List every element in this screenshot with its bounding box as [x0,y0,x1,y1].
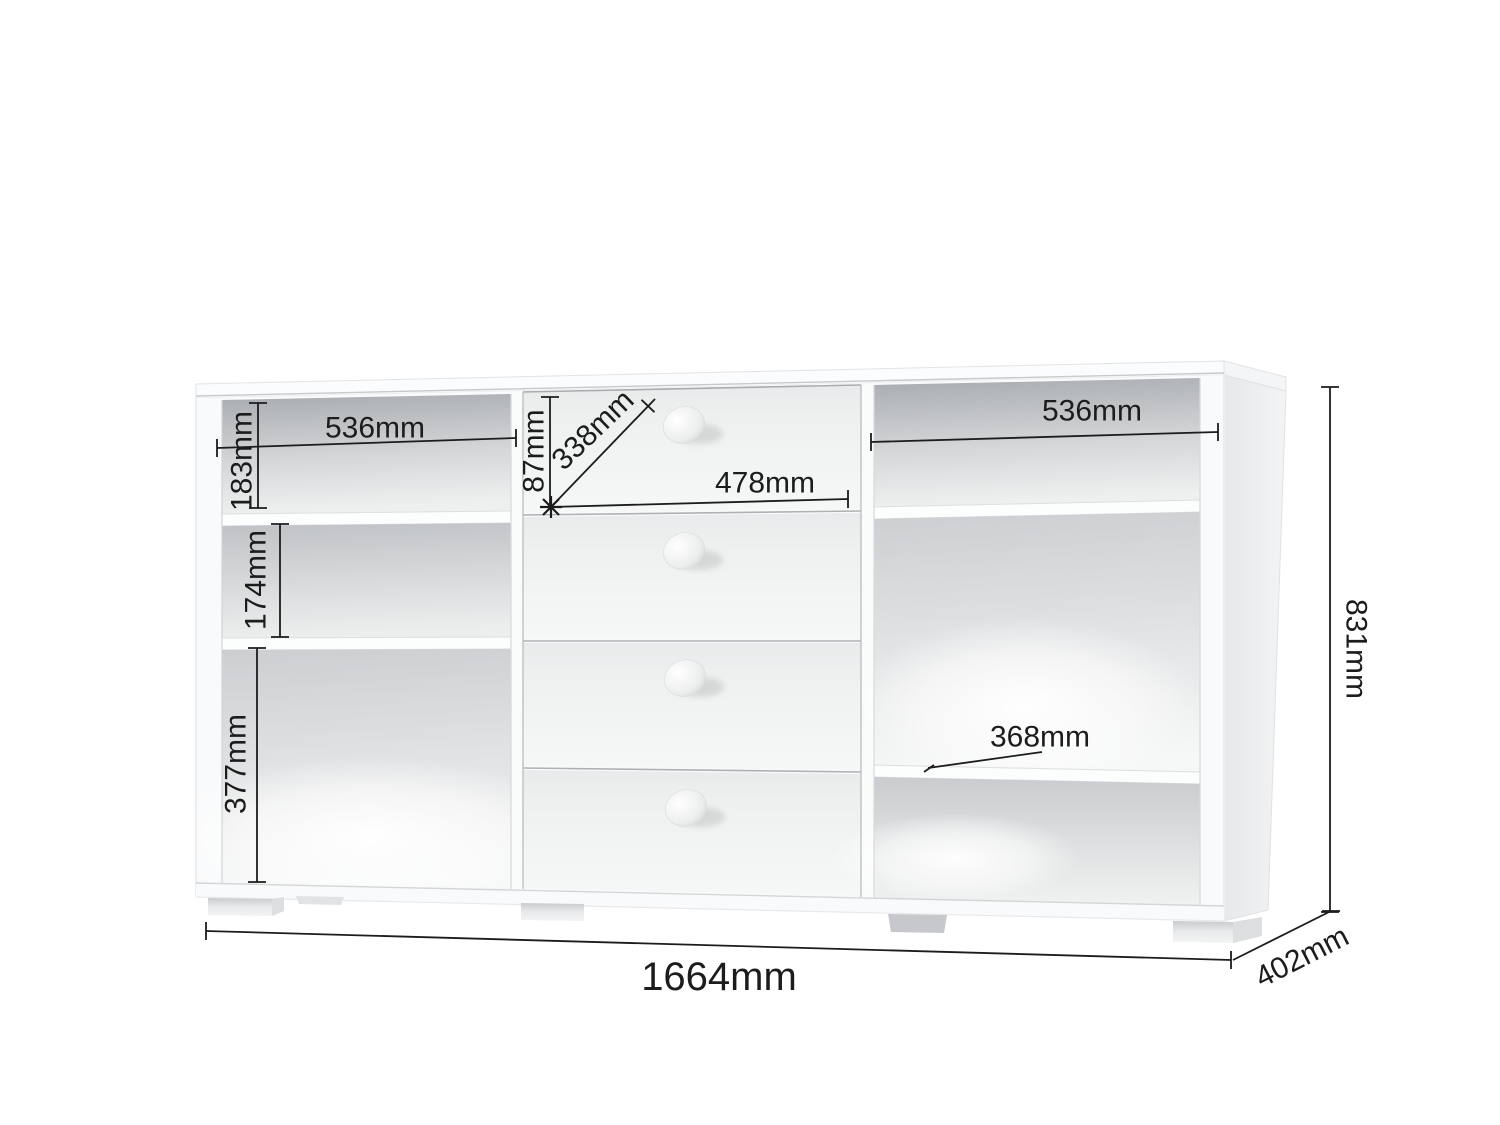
dim-origin-star [540,496,562,518]
drawer-4 [523,770,861,896]
dim-drawer-width-label: 478mm [715,467,815,500]
dim-overall-height-label: 831mm [1340,599,1373,699]
dim-left-middle-compartment-height-label: 174mm [240,530,273,630]
foot-back-mid [888,914,947,933]
right-side-panel [1224,375,1286,921]
foot-front-left-side [272,897,284,916]
foot-back-left [296,896,344,905]
dim-overall-height [1321,387,1339,912]
foot-mid-left [521,903,584,921]
dim-left-shelf-width-label: 536mm [325,412,425,445]
dim-right-shelf-width-label: 536mm [1042,395,1142,428]
sideboard-dimension-diagram: 536mm 183mm 174mm 377mm 87mm 338mm 478mm… [0,0,1500,1125]
dim-overall-width-label: 1664mm [641,955,797,999]
diagram-canvas: 536mm 183mm 174mm 377mm 87mm 338mm 478mm… [0,0,1500,1125]
right-top-compartment [874,378,1200,507]
foot-front-right [1173,921,1233,943]
dim-top-drawer-height-label: 87mm [518,409,551,492]
light-glow [830,813,1080,903]
drawer-2 [523,513,861,639]
foot-front-left [208,898,272,916]
right-divider-stile [861,385,874,898]
sideboard-illustration [155,361,1286,943]
dim-left-bottom-compartment-height-label: 377mm [220,714,253,814]
dim-left-top-compartment-height-label: 183mm [226,411,259,511]
dim-right-shelf-depth-label: 368mm [990,721,1090,754]
foot-front-right-side [1233,917,1262,943]
dim-overall-depth-label: 402mm [1250,920,1354,995]
